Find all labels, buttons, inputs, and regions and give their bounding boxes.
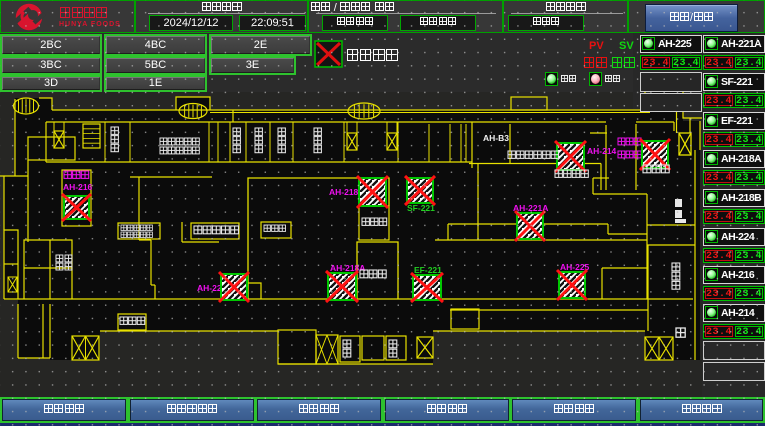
svg-text:AH-216: AH-216: [63, 182, 93, 192]
svg-text:SF-221: SF-221: [407, 203, 435, 213]
svg-text:AH-214: AH-214: [587, 146, 617, 156]
svg-text:EF-221: EF-221: [414, 265, 442, 275]
svg-text:AH-B3: AH-B3: [483, 133, 509, 143]
